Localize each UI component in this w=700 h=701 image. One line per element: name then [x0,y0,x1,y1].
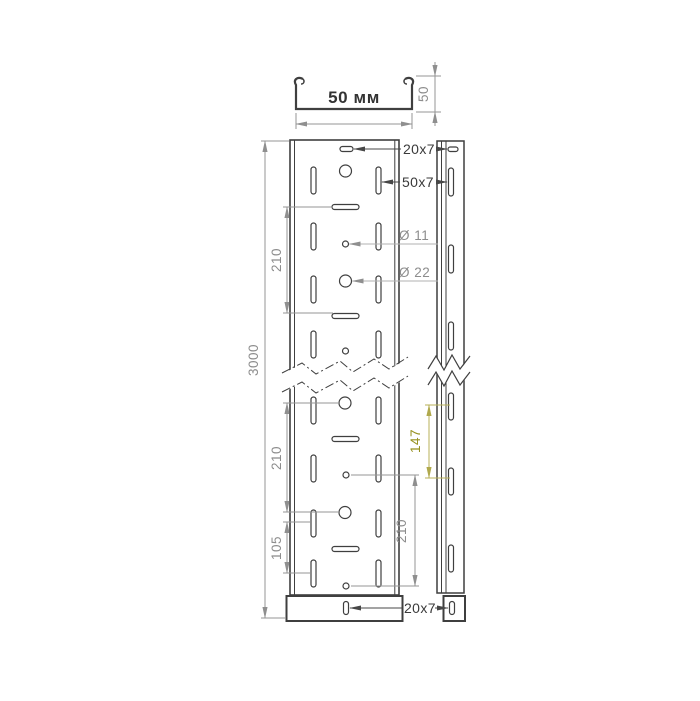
slot-horizontal [332,437,359,442]
end-view: 50 мм 50 [295,62,441,129]
dim-label-210-upper: 210 [269,248,284,272]
dim-upper-210: 210 [269,207,333,313]
slot-50x7-side [449,393,454,420]
cable-tray-drawing: 50 мм 50 [0,0,700,701]
label-dia-11: Ø 11 [399,228,429,243]
slot-50x7-side [449,545,454,572]
slot-50x7 [376,510,381,537]
slot-50x7 [376,455,381,482]
slot-50x7 [376,397,381,424]
dim-profile-height: 50 [416,62,441,126]
slot-50x7 [311,455,316,482]
slot-50x7 [376,276,381,303]
dim-profile-width [296,113,412,129]
slot-50x7-side [449,322,454,350]
hole-22 [339,507,351,519]
dim-lower-210: 210 [269,403,339,512]
slot-50x7 [311,560,316,587]
dim-147: 147 [408,405,450,478]
slot-50x7 [376,560,381,587]
hole-11 [343,583,349,589]
slot-50x7 [311,276,316,303]
hole-11 [343,472,349,478]
dim-label-3000: 3000 [246,344,261,376]
slot-50x7-side [449,168,454,196]
slots-lower-section [311,397,381,589]
slot-50x7 [311,510,316,537]
dim-label-210-lower: 210 [269,446,284,470]
slot-20x7-top [340,147,353,152]
dim-label-210-inner: 210 [394,519,409,543]
label-50x7: 50x7 [402,174,434,190]
dim-label-147: 147 [408,429,423,453]
dim-label-105: 105 [269,536,284,560]
slot-50x7 [311,167,316,194]
hole-11 [343,348,349,354]
label-20x7-bottom: 20x7 [404,600,436,616]
slot-50x7 [311,397,316,424]
slot-50x7 [311,223,316,250]
dim-label-profile-width: 50 мм [328,88,380,107]
slot-50x7 [311,331,316,358]
slot-horizontal [332,547,359,552]
hole-11 [343,241,349,247]
label-dia-22: Ø 22 [399,265,430,280]
slot-50x7-side [449,245,454,273]
callout-hole-11: Ø 11 [350,228,439,244]
slot-50x7 [376,331,381,358]
break-front-view [282,357,408,394]
slot-horizontal [332,205,359,210]
slot-20x7-side [448,147,458,152]
hole-22 [340,275,352,287]
hole-22 [340,165,352,177]
slot-50x7 [376,223,381,250]
dim-label-profile-height: 50 [416,86,431,102]
drawing-canvas: 50 мм 50 [0,0,700,701]
slot-50x7 [376,167,381,194]
slot-horizontal [332,314,359,319]
callout-20x7-top: 20x7 [354,141,447,157]
dim-inner-210: 210 [351,475,419,586]
label-20x7-top: 20x7 [403,141,435,157]
callout-20x7-bottom: 20x7 [350,600,448,616]
hole-22 [339,397,351,409]
slot-20x7-bottom-side [450,602,455,615]
slot-20x7-bottom [344,602,349,615]
slot-50x7-side [449,468,454,495]
slots-upper-section [311,165,381,358]
